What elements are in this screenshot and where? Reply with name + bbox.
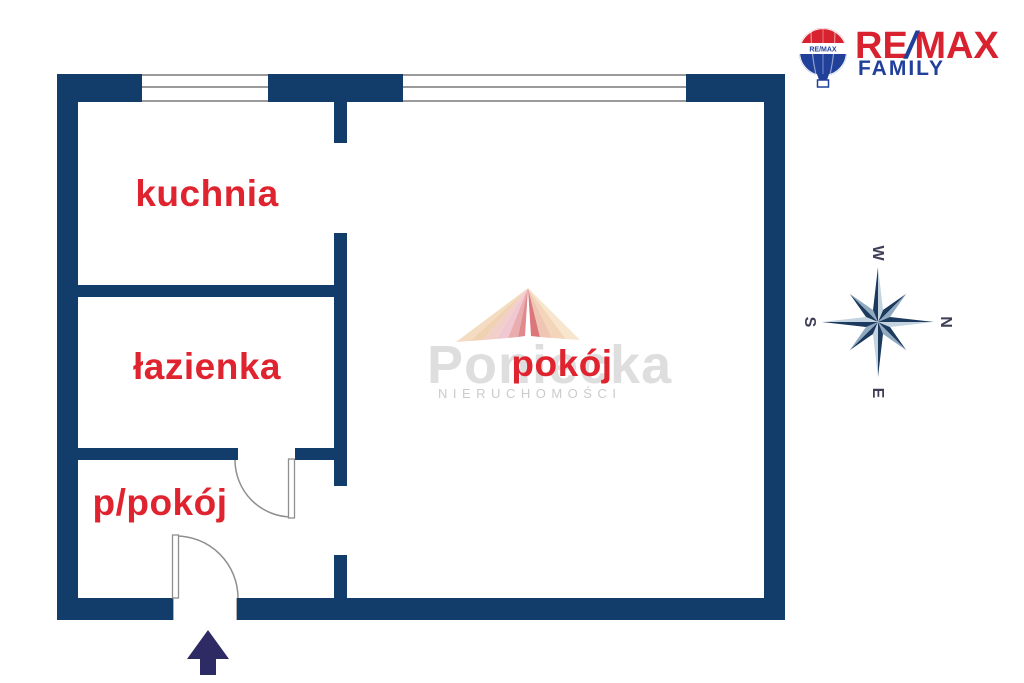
- window-kuchnia: [142, 74, 268, 102]
- compass-point-w: [822, 317, 878, 322]
- entrance-door-opening: [173, 598, 237, 620]
- entrance-door-leaf: [173, 535, 179, 598]
- window-mullion-line: [403, 86, 686, 88]
- compass-label-top: W: [869, 245, 886, 261]
- window-mullion-line: [142, 86, 268, 88]
- interior-wall-kuchnia-lazienka: [78, 285, 347, 297]
- compass-rose: W N E S: [801, 245, 954, 398]
- interior-wall-lazienka-ppokoj-right: [295, 448, 347, 460]
- entrance-arrow: [187, 630, 229, 675]
- compass-point-e: [878, 317, 934, 322]
- compass-label-left: S: [801, 317, 818, 328]
- compass-point-n: [873, 267, 878, 322]
- interior-wall-vertical-top: [334, 101, 347, 143]
- room-label-lazienka: łazienka: [133, 346, 281, 388]
- compass-point-s: [873, 322, 878, 377]
- compass-point-se: [878, 322, 906, 350]
- compass-point-nw: [850, 294, 878, 322]
- compass-point-ne: [878, 294, 906, 322]
- outer-wall-bottom: [57, 598, 785, 620]
- lazienka-door: [235, 459, 295, 518]
- room-label-kuchnia: kuchnia: [135, 173, 278, 215]
- interior-wall-lazienka-ppokoj-left: [78, 448, 238, 460]
- lazienka-door-arc: [235, 460, 292, 517]
- entrance-door-arc: [176, 536, 238, 598]
- balloon-wordmark: RE/MAX: [809, 47, 837, 54]
- lazienka-door-leaf: [289, 459, 295, 518]
- interior-wall-vertical-bottom: [334, 555, 347, 598]
- outer-wall-right: [764, 74, 785, 620]
- balloon-basket: [818, 80, 829, 87]
- compass-point-w: [822, 322, 878, 327]
- watermark-subtitle: NIERUCHOMOŚCI: [438, 386, 621, 401]
- compass-point-n: [878, 267, 883, 322]
- compass-point-ne: [878, 294, 906, 322]
- balloon-throat: [817, 74, 829, 80]
- room-label-p-pokoj: p/pokój: [92, 482, 227, 524]
- floorplan-canvas: Poniecka NIERUCHOMOŚCI: [0, 0, 1024, 683]
- window-pokoj: [403, 74, 686, 102]
- compass-point-s: [878, 322, 883, 377]
- remax-family-label: FAMILY: [858, 58, 945, 79]
- remax-balloon-icon: RE/MAX: [799, 26, 849, 88]
- room-label-pokoj: pokój: [511, 343, 612, 385]
- compass-point-sw: [850, 322, 878, 350]
- entrance-door: [173, 535, 239, 598]
- compass-point-sw: [850, 322, 878, 350]
- compass-point-e: [878, 322, 934, 327]
- compass-label-bottom: E: [869, 388, 886, 399]
- outer-wall-left: [57, 74, 78, 620]
- compass-point-se: [878, 322, 906, 350]
- compass-point-nw: [850, 294, 878, 322]
- compass-label-right: N: [937, 316, 954, 328]
